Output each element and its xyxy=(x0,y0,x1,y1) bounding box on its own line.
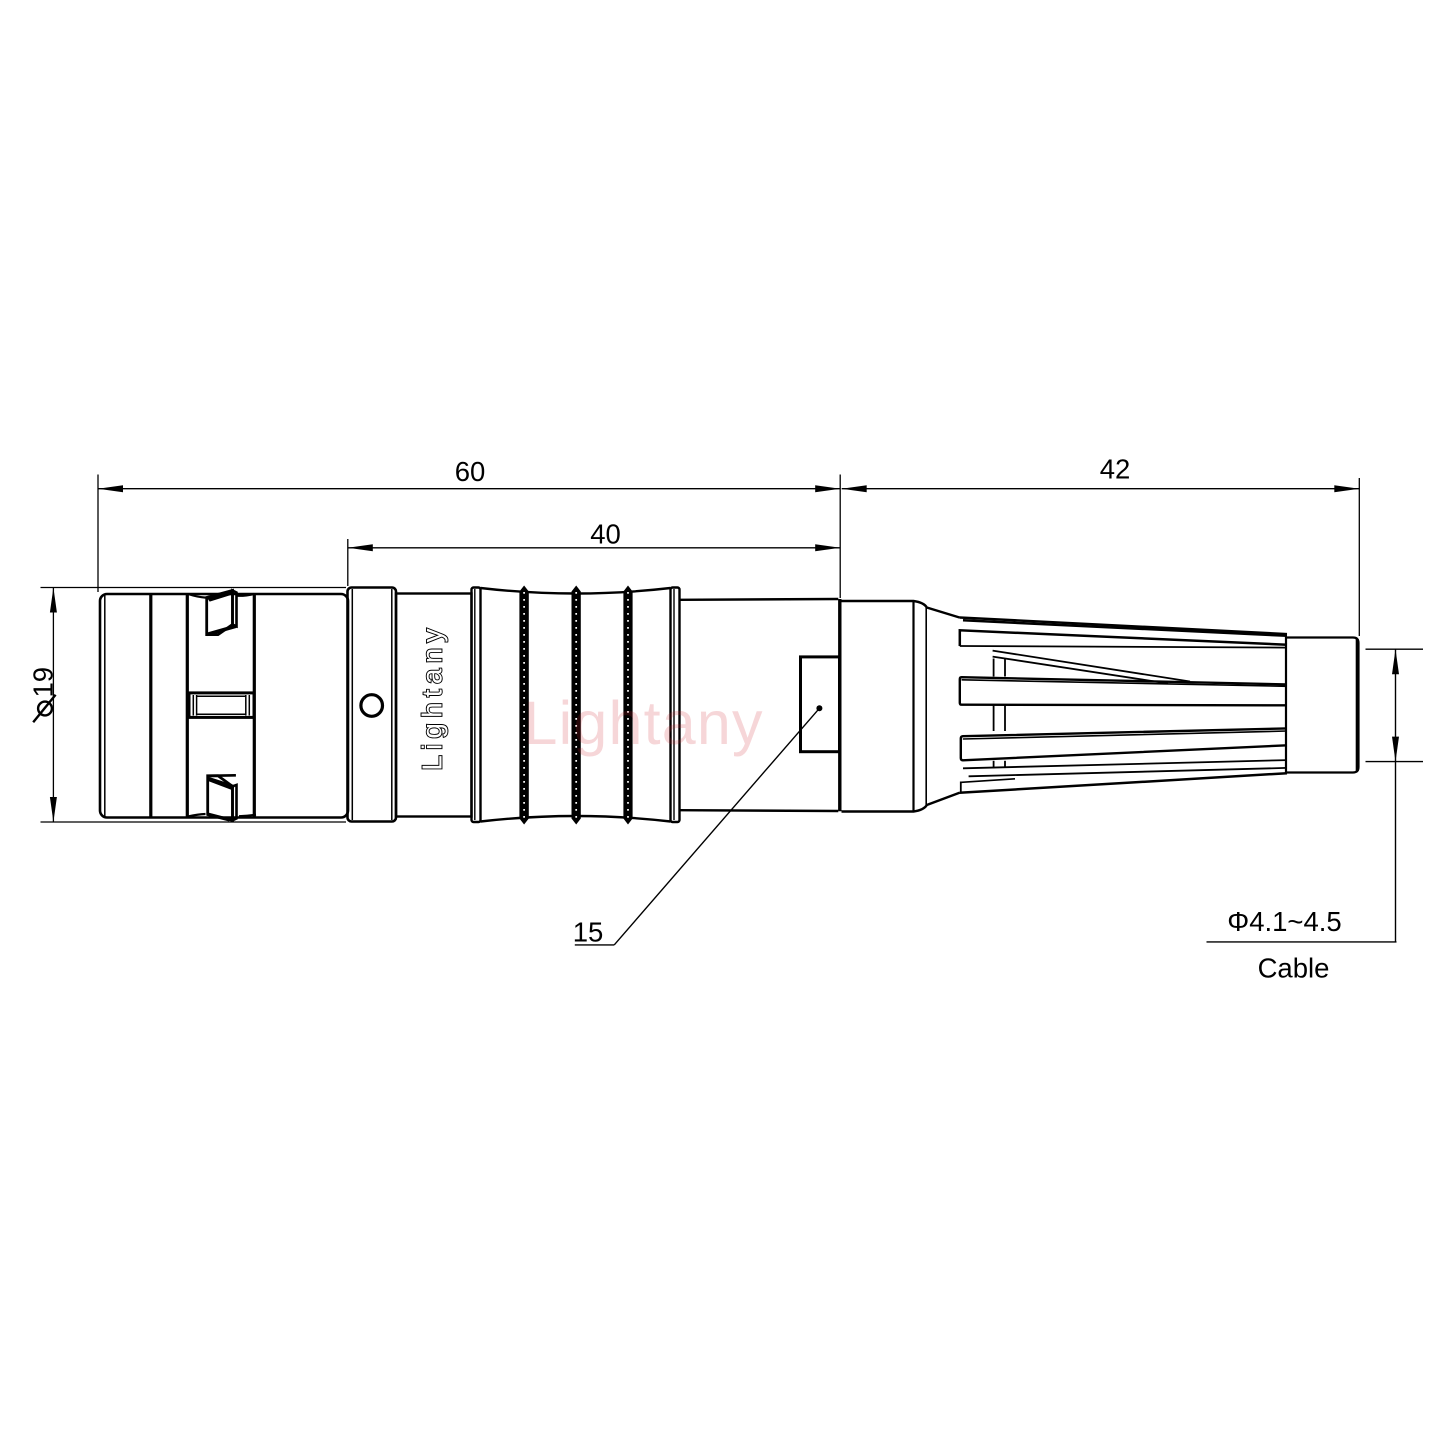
svg-text:Cable: Cable xyxy=(1258,953,1330,984)
svg-text:40: 40 xyxy=(590,518,621,549)
svg-text:42: 42 xyxy=(1100,454,1131,485)
svg-text:Lightany: Lightany xyxy=(417,623,448,770)
svg-text:15: 15 xyxy=(573,917,604,948)
svg-text:Lightany: Lightany xyxy=(524,689,764,757)
svg-text:19: 19 xyxy=(27,667,58,698)
svg-text:60: 60 xyxy=(455,456,486,487)
svg-text:Φ4.1~4.5: Φ4.1~4.5 xyxy=(1227,906,1341,937)
